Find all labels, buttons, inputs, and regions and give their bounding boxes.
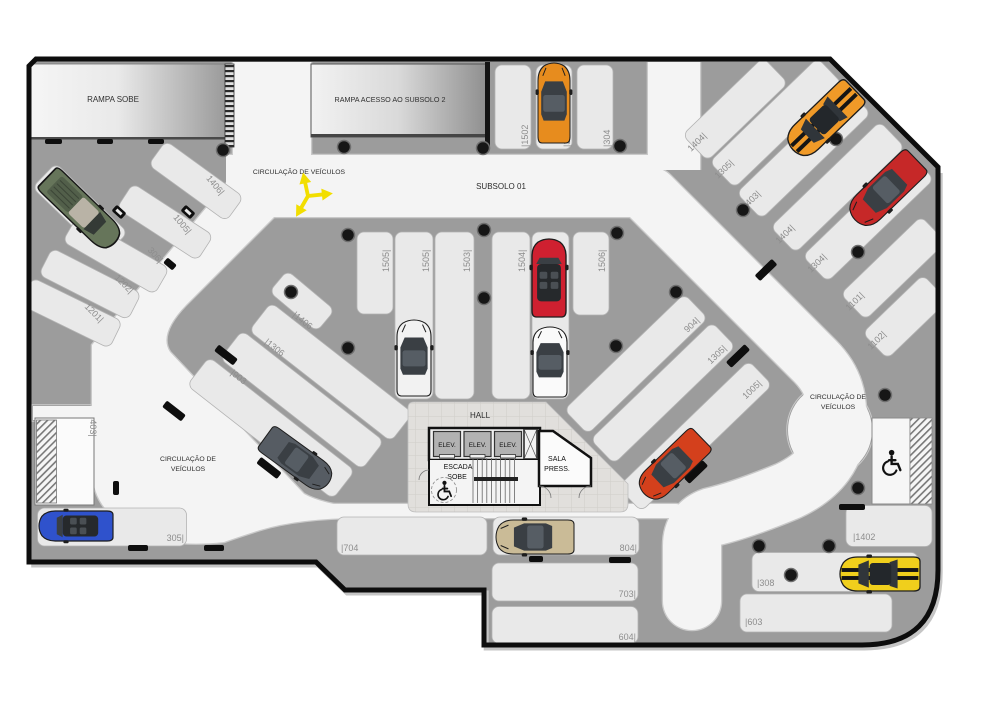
svg-text:VEÍCULOS: VEÍCULOS <box>821 402 856 411</box>
svg-text:PRESS.: PRESS. <box>544 466 570 473</box>
svg-text:CIRCULAÇÃO DE VEÍCULOS: CIRCULAÇÃO DE VEÍCULOS <box>253 167 346 176</box>
svg-text:CIRCULAÇÃO DE: CIRCULAÇÃO DE <box>810 392 866 401</box>
svg-text:305|: 305| <box>167 533 184 543</box>
svg-text:SALA: SALA <box>548 456 566 463</box>
svg-text:604|: 604| <box>619 632 636 642</box>
svg-text:1503|: 1503| <box>462 250 472 272</box>
svg-text:1504|: 1504| <box>517 250 527 272</box>
svg-text:|308: |308 <box>757 578 774 588</box>
svg-text:|304: |304 <box>602 130 612 147</box>
svg-text:CIRCULAÇÃO DE: CIRCULAÇÃO DE <box>160 454 216 463</box>
svg-text:1506|: 1506| <box>597 250 607 272</box>
svg-text:1505|: 1505| <box>421 250 431 272</box>
svg-text:SUBSOLO 01: SUBSOLO 01 <box>476 182 526 191</box>
svg-text:ELEV.: ELEV. <box>499 442 517 449</box>
svg-text:VEÍCULOS: VEÍCULOS <box>171 464 206 473</box>
svg-text:ESCADA: ESCADA <box>444 464 473 471</box>
svg-text:RAMPA SOBE: RAMPA SOBE <box>87 95 139 104</box>
svg-text:804|: 804| <box>620 543 637 553</box>
svg-text:HALL: HALL <box>470 411 491 420</box>
svg-text:|603: |603 <box>745 617 762 627</box>
svg-text:|704: |704 <box>341 543 358 553</box>
svg-text:403|: 403| <box>88 419 98 436</box>
svg-text:|1502: |1502 <box>520 125 530 147</box>
svg-text:SOBE: SOBE <box>447 474 467 481</box>
svg-text:RAMPA ACESSO AO SUBSOLO 2: RAMPA ACESSO AO SUBSOLO 2 <box>335 95 446 104</box>
svg-text:703|: 703| <box>619 589 636 599</box>
svg-text:ELEV.: ELEV. <box>438 442 456 449</box>
svg-text:|1402: |1402 <box>853 532 875 542</box>
svg-text:1505|: 1505| <box>381 250 391 272</box>
svg-text:ELEV.: ELEV. <box>469 442 487 449</box>
